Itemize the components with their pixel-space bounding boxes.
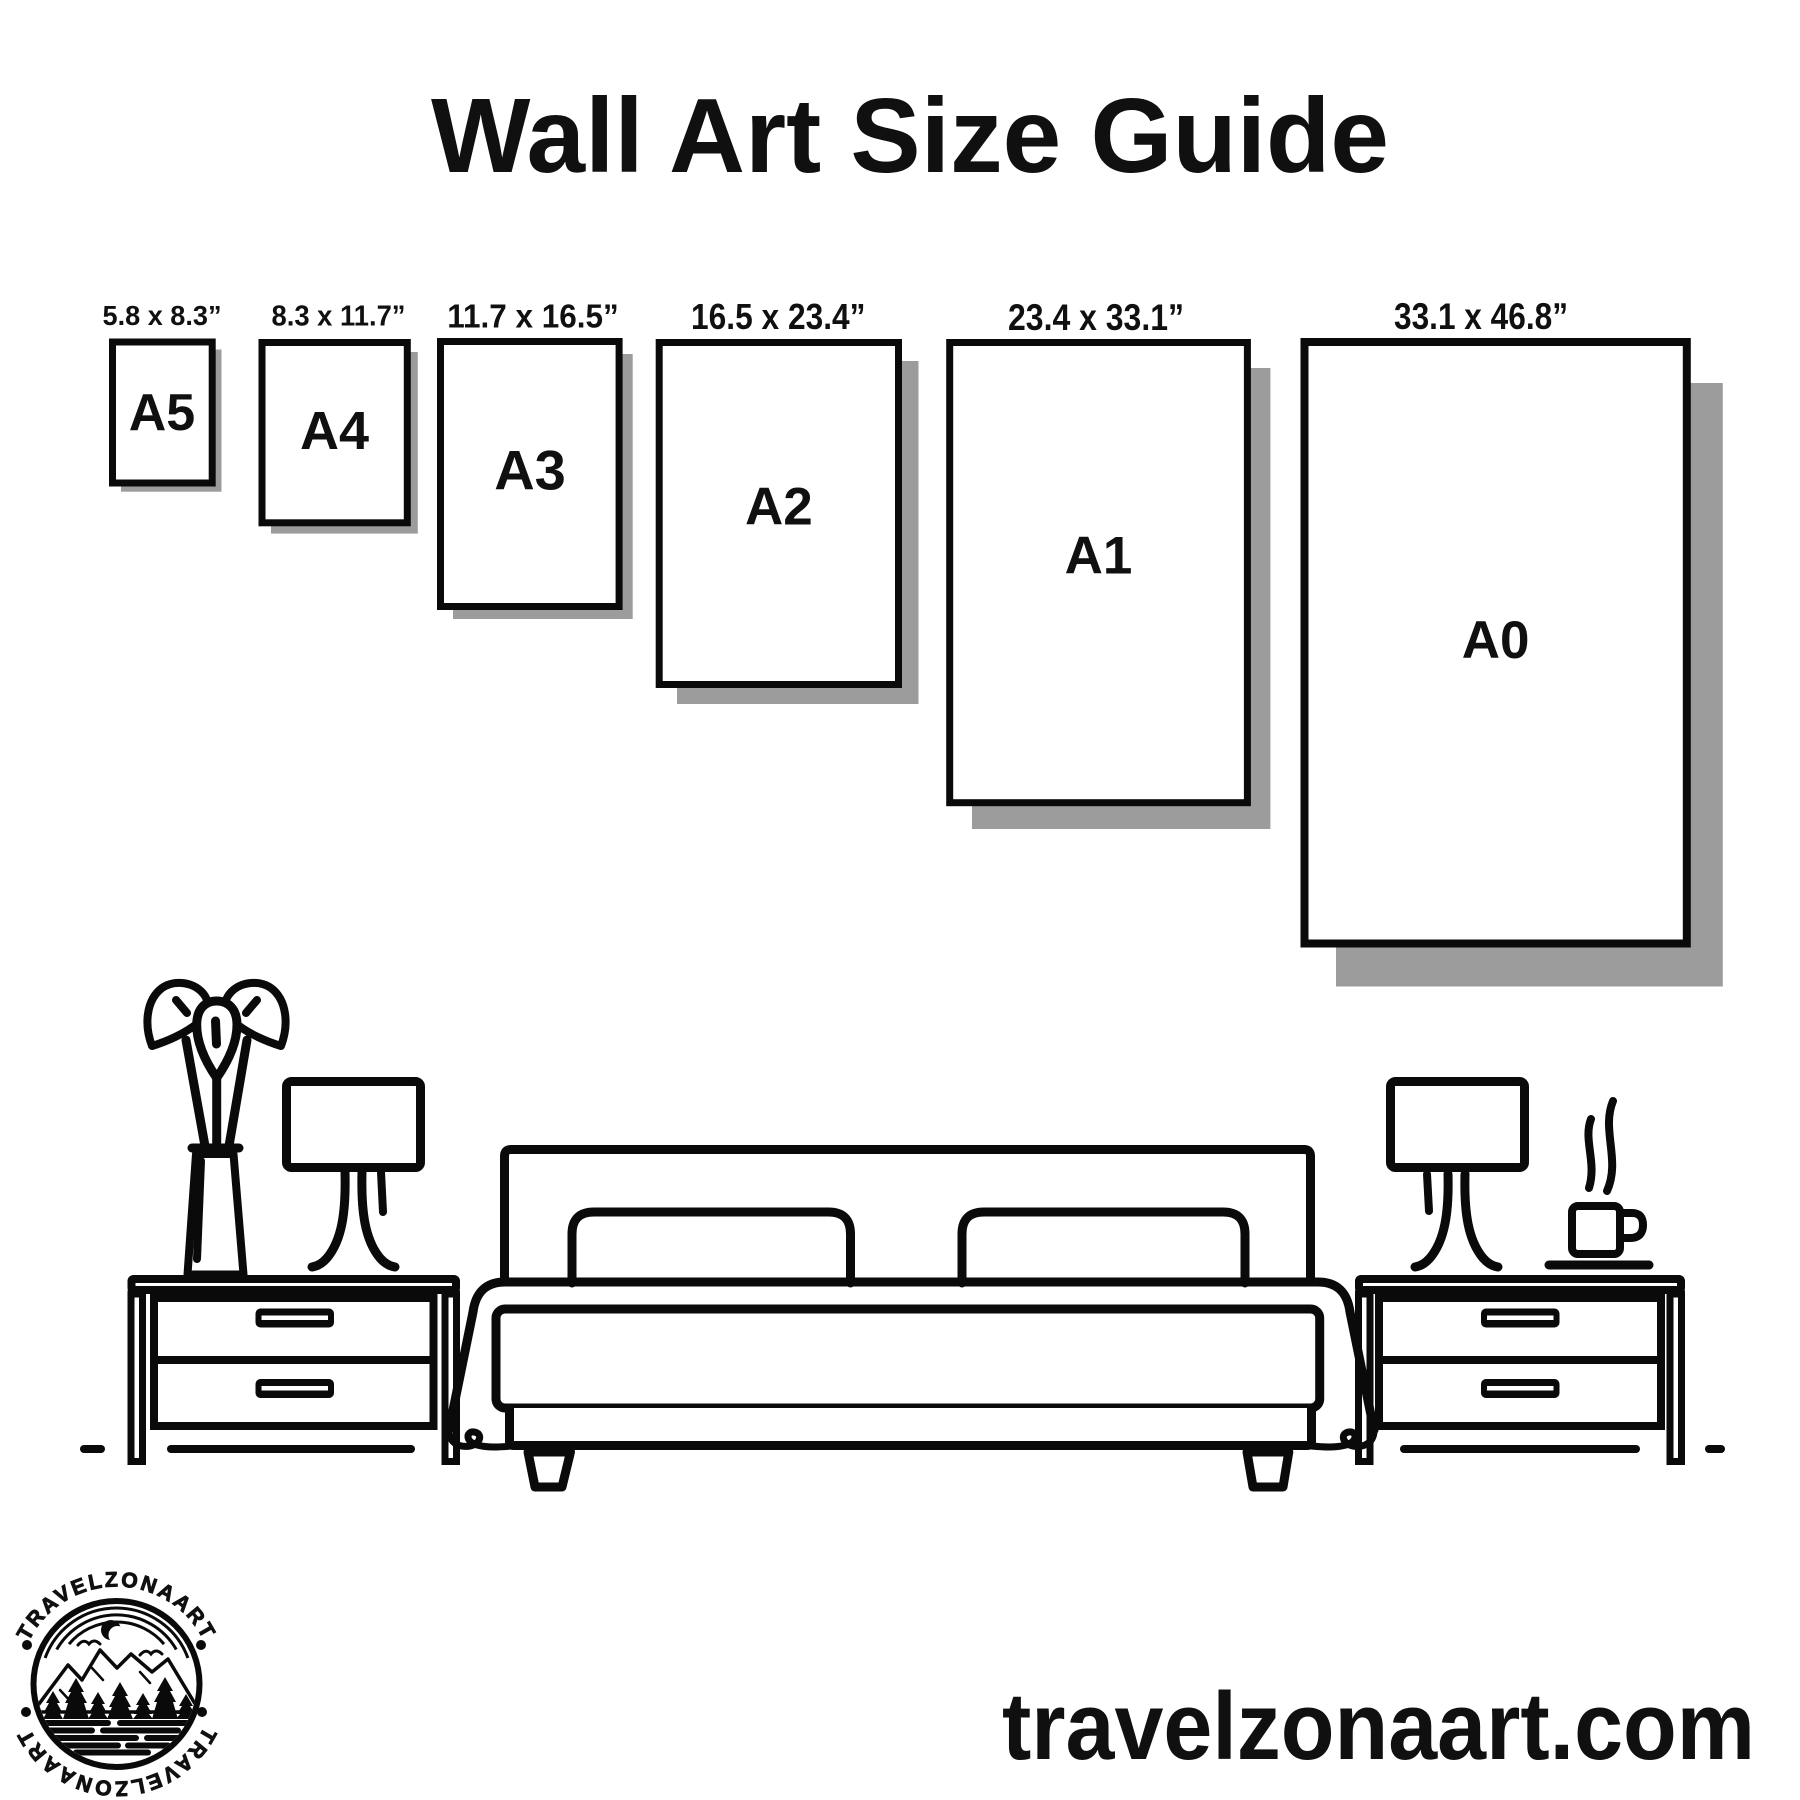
svg-text:23.4 x 33.1”: 23.4 x 33.1”	[1008, 296, 1184, 338]
svg-text:Wall Art Size Guide: Wall Art Size Guide	[431, 77, 1389, 195]
svg-text:5.8 x 8.3”: 5.8 x 8.3”	[103, 300, 222, 331]
svg-text:16.5 x 23.4”: 16.5 x 23.4”	[691, 296, 866, 337]
svg-text:A3: A3	[494, 439, 566, 502]
svg-text:11.7 x 16.5”: 11.7 x 16.5”	[447, 299, 619, 336]
svg-text:A2: A2	[745, 478, 813, 537]
svg-text:A0: A0	[1462, 611, 1530, 670]
svg-text:A1: A1	[1065, 527, 1133, 586]
svg-text:A4: A4	[300, 401, 369, 461]
svg-text:A5: A5	[129, 384, 195, 442]
svg-text:8.3 x 11.7”: 8.3 x 11.7”	[272, 301, 406, 333]
svg-text:33.1 x 46.8”: 33.1 x 46.8”	[1394, 295, 1568, 337]
svg-text:travelzonaart.com: travelzonaart.com	[1002, 1673, 1755, 1780]
